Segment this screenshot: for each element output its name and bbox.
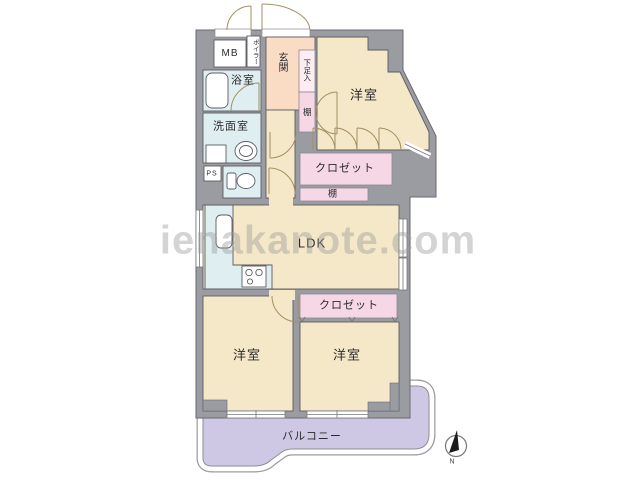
label-ps: PS bbox=[206, 171, 217, 178]
compass-north-label: N bbox=[449, 459, 454, 466]
toilet-bowl bbox=[237, 174, 255, 189]
label-washroom: 洗面室 bbox=[213, 122, 249, 133]
label-bedroom-top: 洋室 bbox=[350, 89, 378, 102]
label-boiler: ボイラー bbox=[251, 39, 258, 65]
label-balcony: バルコニー bbox=[282, 432, 342, 443]
label-closet-bottom: クロゼット bbox=[319, 301, 379, 312]
label-mb: MB bbox=[222, 49, 239, 59]
floor-plan-page: MB ボイラー 玄関 下足入 棚 浴室 洗面室 PS 洋室 クロゼット 棚 LD… bbox=[0, 0, 640, 480]
label-shoe-cabinet: 下足入 bbox=[303, 59, 311, 82]
meter-box-opening bbox=[215, 29, 251, 37]
label-bathroom: 浴室 bbox=[231, 76, 255, 87]
bathtub bbox=[206, 73, 228, 108]
compass bbox=[446, 430, 467, 457]
ldk-bedroom-doorway bbox=[269, 290, 295, 300]
label-shelf-entry: 棚 bbox=[303, 108, 312, 117]
label-bedroom-right: 洋室 bbox=[333, 349, 361, 362]
stove bbox=[242, 266, 266, 287]
label-closet-top: クロゼット bbox=[315, 164, 375, 175]
wash-basin-bowl bbox=[240, 146, 253, 157]
entrance-opening bbox=[262, 29, 310, 37]
label-bedroom-left: 洋室 bbox=[233, 349, 261, 362]
label-genkan: 玄関 bbox=[276, 52, 286, 72]
toilet-tank bbox=[227, 173, 236, 189]
bedroom-right-room bbox=[300, 322, 399, 411]
laundry-space bbox=[206, 145, 226, 163]
wall-chunk-right bbox=[390, 383, 399, 411]
watermark: ienakanote.com bbox=[160, 219, 476, 264]
label-shelf-mid: 棚 bbox=[328, 190, 338, 199]
hall-ldk-doorway bbox=[269, 196, 293, 208]
wall-chunk-bottom-left bbox=[203, 400, 227, 411]
